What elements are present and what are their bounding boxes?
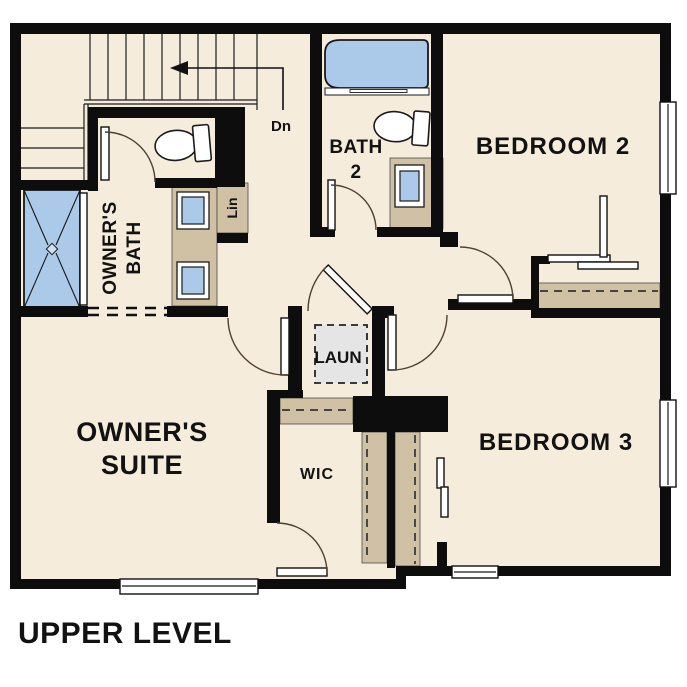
vanity-sink-owners-2 xyxy=(177,262,209,299)
wall-bedroom2-bedroom3 xyxy=(531,308,671,318)
wall-closet-divider xyxy=(387,432,395,568)
wall-exterior-bottom-right xyxy=(396,566,671,576)
bath2-label-line2: 2 xyxy=(350,162,361,183)
owners-bath-label-line1: OWNER'S xyxy=(100,201,121,295)
wall-bedroom2-closet-top-stub xyxy=(531,256,550,264)
vanity-sink-bath2 xyxy=(395,165,424,207)
wall-laundry-west xyxy=(288,306,302,397)
exterior-mask xyxy=(396,576,687,687)
bedroom3-closet-strip xyxy=(395,432,420,566)
wall-bath2-east xyxy=(431,23,443,237)
bedroom2-label: BEDROOM 2 xyxy=(476,133,630,160)
wall-exterior-top xyxy=(10,23,671,34)
owners-bath-label-line2: BATH xyxy=(124,221,145,274)
wall-center-chase xyxy=(353,396,448,432)
wall-wic-west xyxy=(267,390,280,523)
door-toilet-room xyxy=(101,127,109,180)
door-owners-suite xyxy=(281,318,289,375)
wall-shower-north xyxy=(10,180,90,190)
floor-plan-drawing: OWNER'S SUITE OWNER'S BATH BATH 2 BEDROO… xyxy=(0,0,687,687)
door-wic xyxy=(277,568,327,576)
owners-suite-label-line1: OWNER'S xyxy=(76,417,207,447)
linen-label: Lin xyxy=(224,198,240,219)
wall-bedroom2-door-corner xyxy=(440,232,458,247)
sliding-door-bedroom2-closet-2 xyxy=(578,262,638,269)
wall-linen-south xyxy=(217,233,248,243)
wall-toilet-room-south xyxy=(155,178,217,188)
laundry-label: LAUN xyxy=(314,348,361,367)
bathtub xyxy=(325,40,429,95)
wic-label: WIC xyxy=(300,466,334,483)
wall-owners-bath-south-left xyxy=(10,306,88,317)
wall-owners-bath-west xyxy=(88,107,98,191)
wall-toilet-room-chase xyxy=(215,107,245,187)
sliding-door-bedroom3-closet-1 xyxy=(437,458,444,488)
shower xyxy=(24,190,87,308)
wall-bath2-west xyxy=(310,23,322,237)
sliding-door-bedroom3-closet-2 xyxy=(441,487,448,517)
wall-bedroom2-closet-west xyxy=(531,256,539,310)
door-bath2 xyxy=(328,180,335,230)
wic-shelf xyxy=(280,398,353,424)
door-leaf-bedroom2-closet xyxy=(600,196,607,257)
wic-hanging-strip xyxy=(362,432,387,563)
wall-bedroom3-closet-stub xyxy=(437,542,447,566)
wall-exterior-step xyxy=(396,566,406,589)
door-bedroom3 xyxy=(388,315,396,370)
shower-glass-door xyxy=(80,193,87,305)
plan-title: UPPER LEVEL xyxy=(18,617,232,650)
bedroom2-closet-shelf xyxy=(538,283,660,309)
floor-plan: OWNER'S SUITE OWNER'S BATH BATH 2 BEDROO… xyxy=(0,0,687,687)
owners-suite-label-line2: SUITE xyxy=(101,450,183,480)
bedroom3-label: BEDROOM 3 xyxy=(479,429,633,456)
wall-owners-bath-south-right xyxy=(167,306,228,317)
wall-laundry-east xyxy=(372,306,385,397)
wall-bath2-south-right xyxy=(377,227,443,237)
vanity-sink-owners-1 xyxy=(177,192,209,229)
bath2-label-line1: BATH xyxy=(329,137,382,158)
wall-wic-north-stub xyxy=(267,390,303,398)
stairs-down-label: Dn xyxy=(271,118,291,135)
door-bedroom2 xyxy=(458,295,513,303)
